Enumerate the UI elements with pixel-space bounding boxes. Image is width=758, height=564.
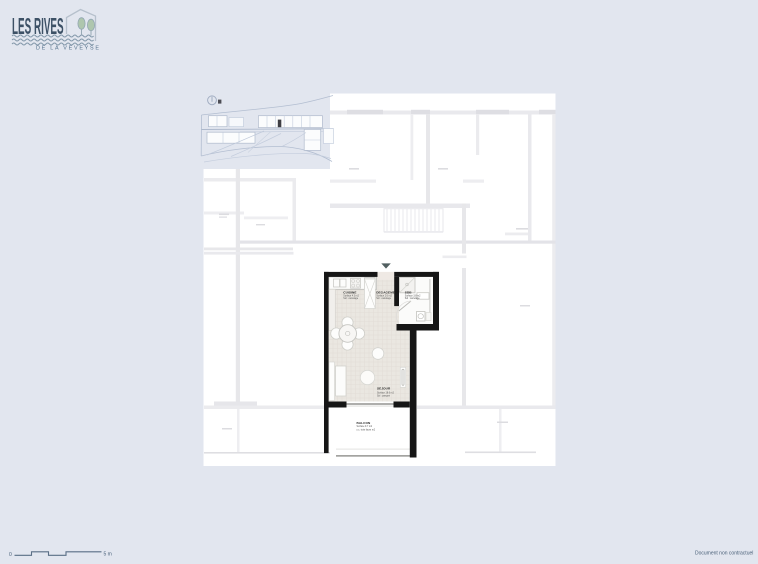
svg-text:Sol : carrelage: Sol : carrelage [405,297,421,300]
svg-text:y c. trois faces m2: y c. trois faces m2 [357,428,376,431]
svg-text:Sol : carrelage: Sol : carrelage [343,297,359,300]
svg-text:0: 0 [9,552,12,558]
svg-text:Document non contractuel: Document non contractuel [695,551,753,557]
svg-text:Surface 18.6 m2: Surface 18.6 m2 [377,391,395,394]
svg-text:CUISINE: CUISINE [343,290,356,294]
svg-text:BALCON: BALCON [357,421,371,425]
svg-text:Sol : parquet: Sol : parquet [377,394,390,397]
svg-text:Surface 9.7 m2: Surface 9.7 m2 [357,425,373,428]
svg-text:SEJOUR: SEJOUR [377,387,391,391]
svg-text:SDB: SDB [405,290,412,294]
svg-text:5 m: 5 m [104,551,112,557]
svg-text:Sol : carrelage: Sol : carrelage [376,297,392,300]
svg-text:DE LA VEVEYSE: DE LA VEVEYSE [36,46,101,52]
